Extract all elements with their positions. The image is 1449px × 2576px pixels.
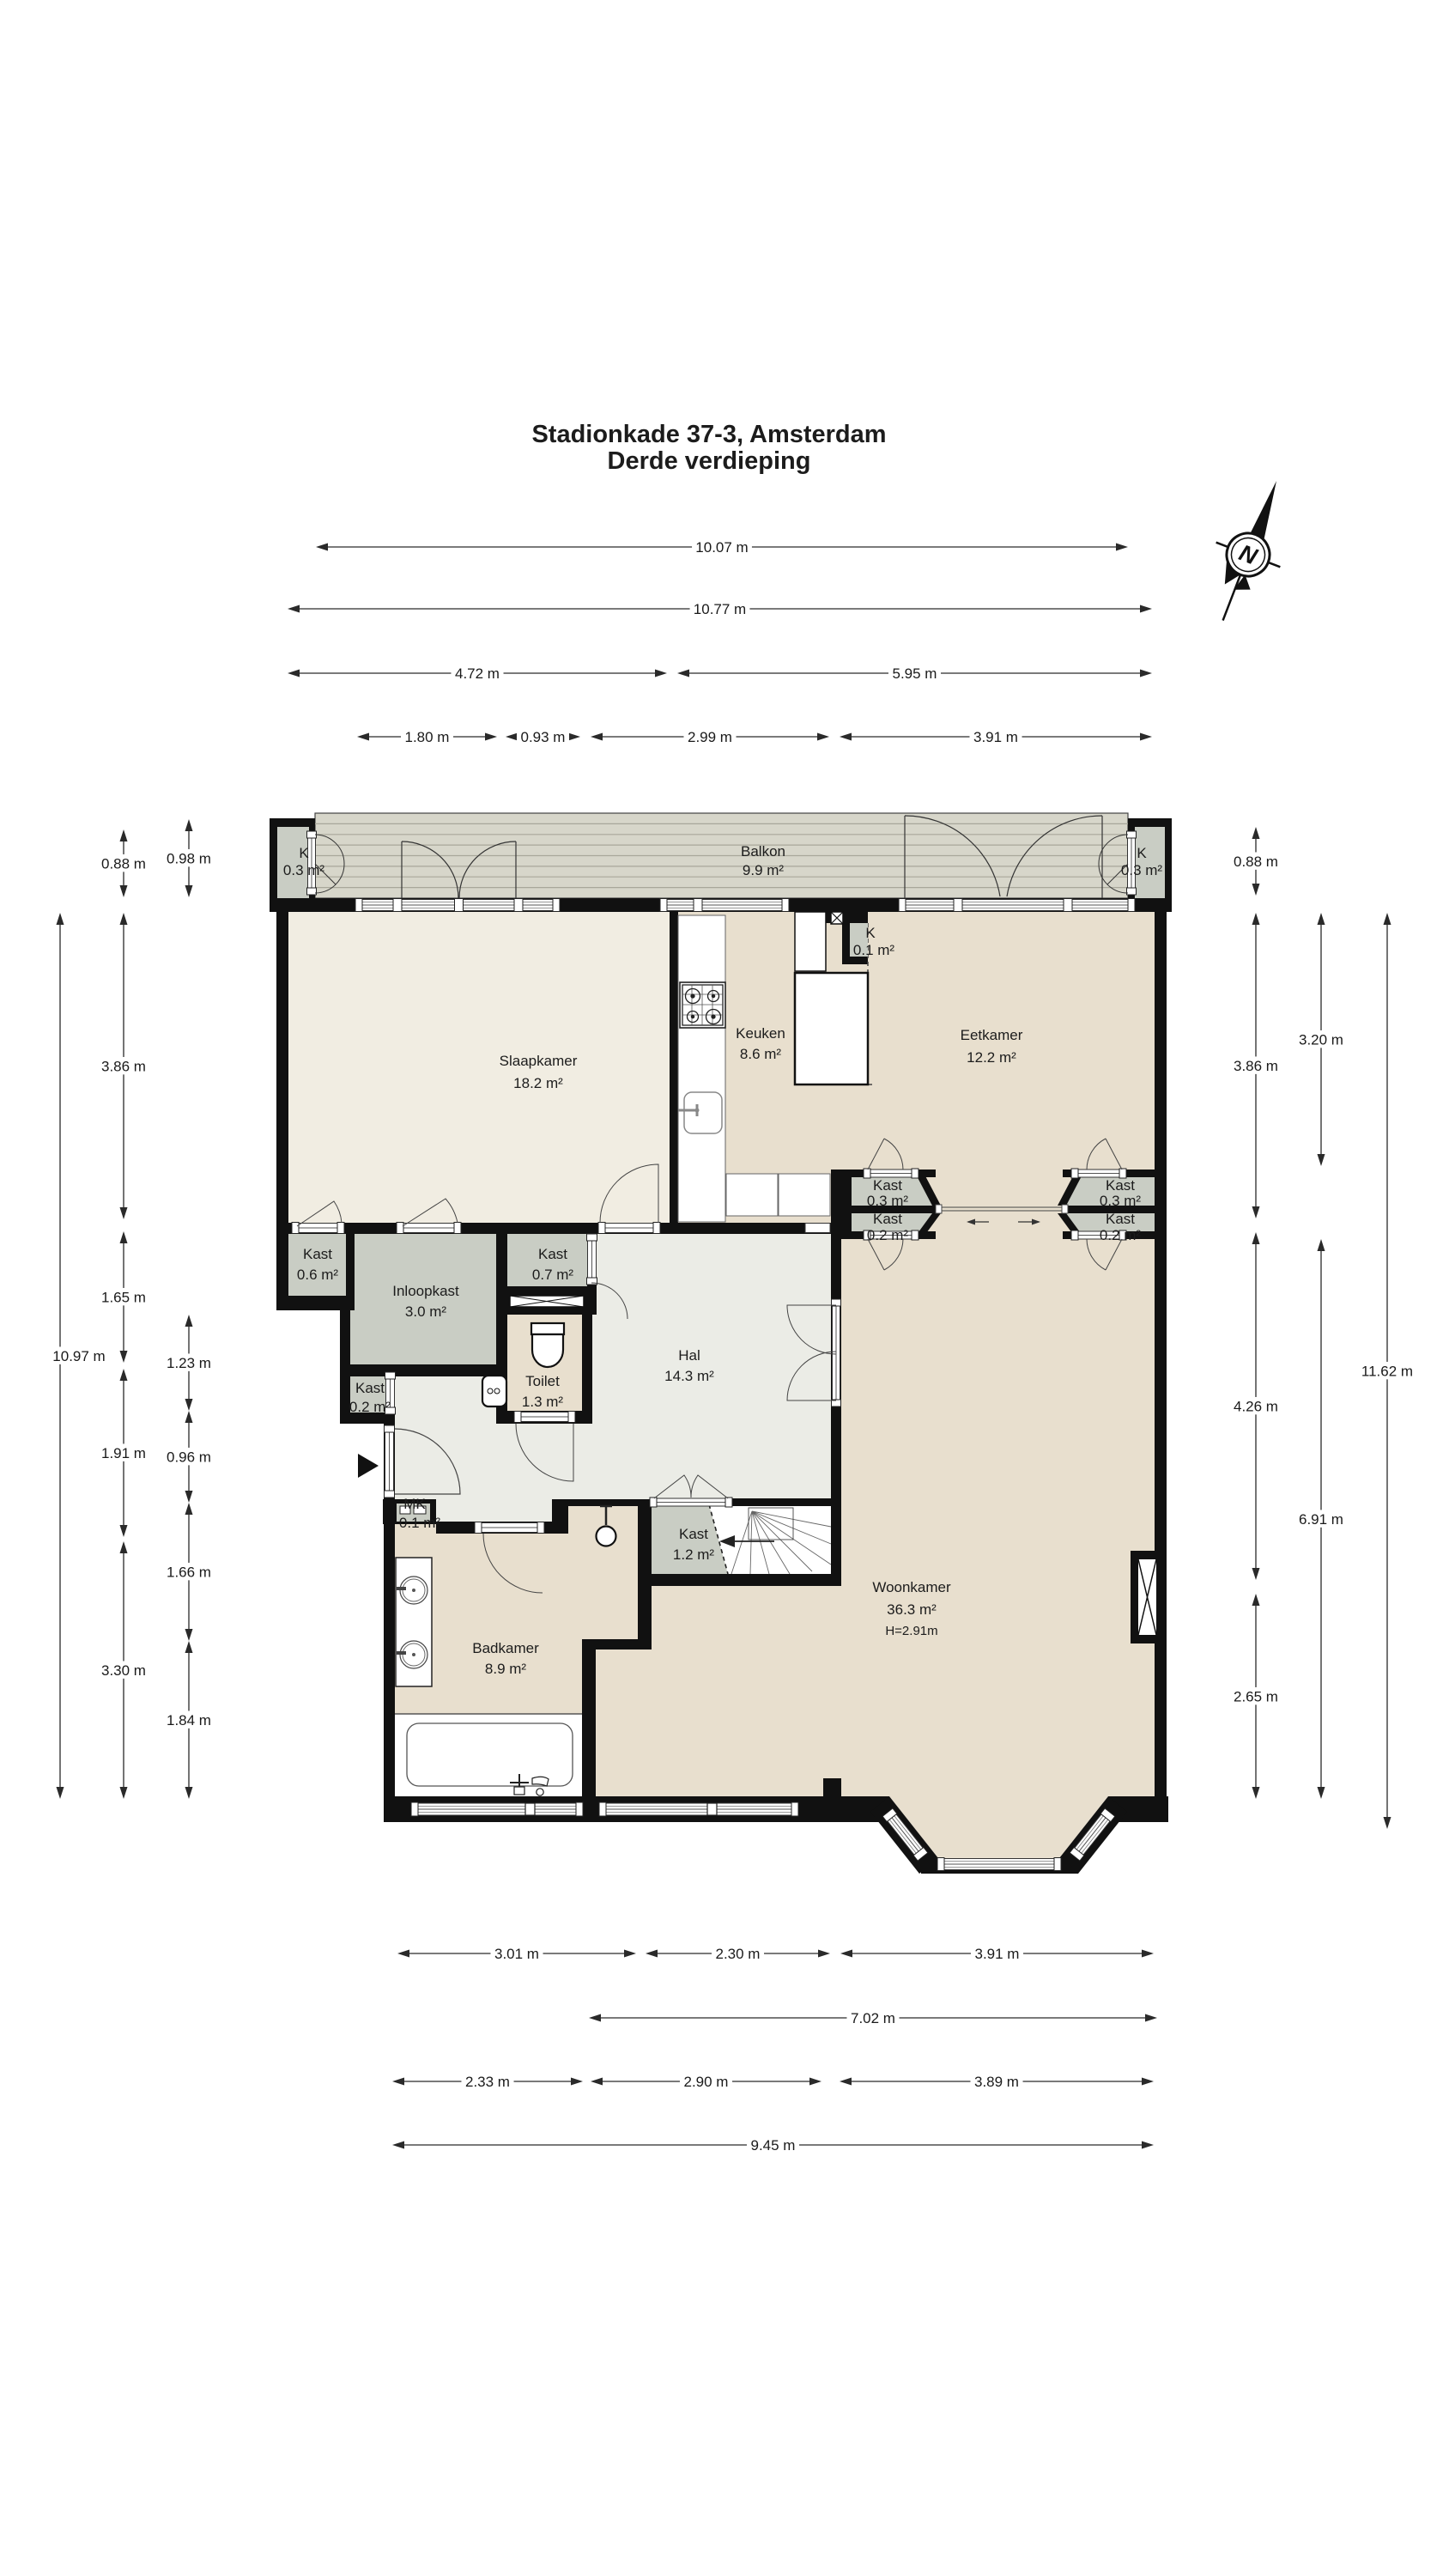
svg-text:Toilet: Toilet [525,1373,560,1389]
svg-text:Stadionkade 37-3, Amsterdam: Stadionkade 37-3, Amsterdam [531,421,886,448]
svg-text:3.89 m: 3.89 m [974,2074,1019,2090]
svg-text:0.3 m²: 0.3 m² [283,862,325,878]
svg-text:10.77 m: 10.77 m [694,601,746,617]
svg-text:Eetkamer: Eetkamer [961,1027,1023,1043]
svg-text:0.1 m²: 0.1 m² [853,942,895,958]
svg-text:K: K [865,925,876,941]
svg-text:Badkamer: Badkamer [472,1640,539,1656]
svg-text:Kast: Kast [1106,1177,1135,1194]
svg-text:Kast: Kast [355,1380,385,1396]
svg-text:3.20 m: 3.20 m [1299,1031,1343,1048]
svg-text:9.45 m: 9.45 m [751,2137,796,2154]
svg-text:3.0 m²: 3.0 m² [405,1303,447,1320]
svg-text:0.98 m: 0.98 m [167,850,211,866]
svg-text:2.65 m: 2.65 m [1234,1688,1278,1704]
svg-text:2.90 m: 2.90 m [684,2074,729,2090]
svg-text:H=2.91m: H=2.91m [885,1624,937,1638]
svg-text:1.80 m: 1.80 m [405,729,450,745]
svg-text:3.86 m: 3.86 m [101,1058,146,1074]
svg-text:Balkon: Balkon [741,843,785,860]
svg-text:4.72 m: 4.72 m [455,665,500,682]
svg-text:36.3 m²: 36.3 m² [887,1601,937,1618]
svg-text:Kast: Kast [873,1211,902,1227]
svg-text:0.88 m: 0.88 m [101,855,146,872]
svg-text:14.3 m²: 14.3 m² [664,1368,714,1384]
svg-text:Derde verdieping: Derde verdieping [608,447,811,475]
svg-text:9.9 m²: 9.9 m² [743,862,785,878]
svg-text:Woonkamer: Woonkamer [872,1579,951,1595]
svg-text:0.93 m: 0.93 m [521,729,566,745]
svg-text:1.65 m: 1.65 m [101,1289,146,1305]
svg-text:8.6 m²: 8.6 m² [740,1046,782,1062]
svg-text:Kast: Kast [303,1246,332,1262]
svg-text:K: K [1137,845,1147,861]
svg-text:3.86 m: 3.86 m [1234,1058,1278,1074]
svg-text:2.30 m: 2.30 m [716,1946,761,1962]
svg-text:4.26 m: 4.26 m [1234,1398,1278,1414]
svg-text:Inloopkast: Inloopkast [392,1283,459,1299]
svg-text:3.30 m: 3.30 m [101,1662,146,1679]
svg-text:1.84 m: 1.84 m [167,1712,211,1728]
svg-text:11.62 m: 11.62 m [1361,1363,1413,1379]
svg-text:0.7 m²: 0.7 m² [532,1267,574,1283]
svg-text:0.2 m²: 0.2 m² [867,1227,909,1243]
svg-text:0.3 m²: 0.3 m² [1100,1193,1142,1209]
svg-text:0.1 m²: 0.1 m² [399,1515,441,1531]
svg-text:18.2 m²: 18.2 m² [513,1075,563,1091]
svg-text:1.2 m²: 1.2 m² [673,1546,715,1563]
svg-text:1.23 m: 1.23 m [167,1355,211,1371]
svg-text:1.3 m²: 1.3 m² [522,1394,564,1410]
svg-text:1.91 m: 1.91 m [101,1445,146,1461]
svg-text:6.91 m: 6.91 m [1299,1511,1343,1528]
svg-text:10.97 m: 10.97 m [52,1348,105,1364]
svg-text:MK: MK [403,1496,426,1512]
svg-text:0.88 m: 0.88 m [1234,854,1278,870]
svg-text:2.33 m: 2.33 m [465,2074,510,2090]
svg-text:3.91 m: 3.91 m [973,729,1018,745]
svg-text:Kast: Kast [1106,1211,1135,1227]
svg-text:10.07 m: 10.07 m [695,539,748,556]
svg-text:3.01 m: 3.01 m [494,1946,539,1962]
svg-text:Keuken: Keuken [736,1025,785,1042]
svg-text:0.6 m²: 0.6 m² [297,1267,339,1283]
svg-text:0.2 m²: 0.2 m² [349,1399,391,1415]
svg-text:8.9 m²: 8.9 m² [485,1661,527,1677]
svg-text:12.2 m²: 12.2 m² [967,1049,1016,1066]
svg-text:0.96 m: 0.96 m [167,1449,211,1465]
svg-text:7.02 m: 7.02 m [851,2010,895,2026]
svg-text:1.66 m: 1.66 m [167,1564,211,1580]
svg-text:Slaapkamer: Slaapkamer [500,1053,578,1069]
svg-text:Hal: Hal [678,1347,700,1364]
svg-text:5.95 m: 5.95 m [893,665,937,682]
svg-text:2.99 m: 2.99 m [688,729,732,745]
svg-text:0.2 m²: 0.2 m² [1100,1227,1142,1243]
svg-text:Kast: Kast [538,1246,567,1262]
svg-text:Kast: Kast [873,1177,902,1194]
svg-text:0.3 m²: 0.3 m² [1121,862,1163,878]
svg-text:0.3 m²: 0.3 m² [867,1193,909,1209]
svg-text:3.91 m: 3.91 m [975,1946,1020,1962]
svg-text:Kast: Kast [679,1526,708,1542]
svg-text:K: K [299,845,309,861]
